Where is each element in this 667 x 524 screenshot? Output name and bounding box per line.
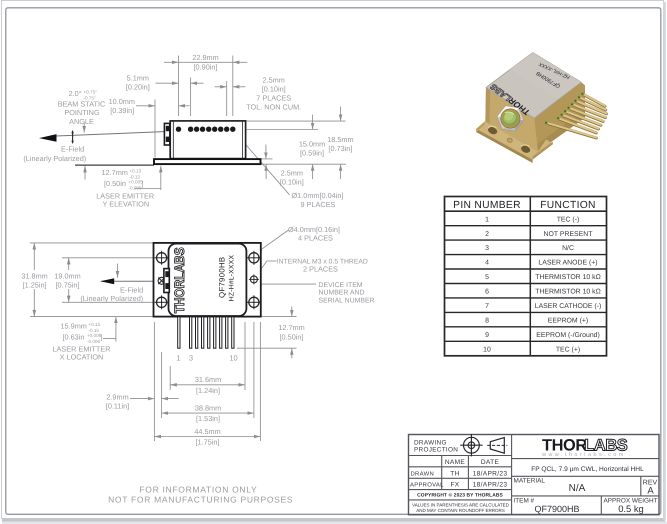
svg-text:PIN NUMBER: PIN NUMBER	[453, 200, 521, 211]
svg-text:(Linearly Polarized): (Linearly Polarized)	[23, 154, 86, 163]
svg-text:[0.75in]: [0.75in]	[56, 280, 80, 289]
svg-text:A: A	[647, 486, 654, 497]
svg-text:QF7900HB: QF7900HB	[218, 257, 227, 298]
svg-text:N/A: N/A	[569, 483, 586, 494]
svg-text:(Linearly Polarized): (Linearly Polarized)	[80, 294, 143, 303]
svg-text:ITEM #: ITEM #	[514, 497, 535, 504]
svg-text:4 PLACES: 4 PLACES	[298, 233, 333, 242]
svg-text:22.9mm: 22.9mm	[192, 53, 218, 62]
svg-text:AND MAY CONTAIN ROUNDOFF ERROR: AND MAY CONTAIN ROUNDOFF ERRORS	[416, 508, 505, 513]
svg-text:Ø1.0mm[0.04in]: Ø1.0mm[0.04in]	[292, 191, 344, 200]
svg-text:DRAWING: DRAWING	[414, 439, 447, 446]
svg-text:2: 2	[485, 231, 489, 238]
svg-text:8: 8	[485, 318, 489, 325]
svg-text:15.0mm: 15.0mm	[299, 140, 325, 149]
svg-text:2 PLACES: 2 PLACES	[303, 264, 338, 273]
svg-text:2.0°: 2.0°	[69, 89, 82, 98]
svg-text:[0.10in]: [0.10in]	[262, 84, 286, 93]
svg-text:+0.006: +0.006	[87, 333, 102, 338]
svg-text:NOT FOR MANUFACTURING PURPOSES: NOT FOR MANUFACTURING PURPOSES	[108, 495, 293, 505]
svg-text:3: 3	[189, 353, 193, 362]
svg-text:+0.15: +0.15	[89, 322, 101, 327]
svg-text:31.8mm: 31.8mm	[21, 271, 47, 280]
svg-text:[1.24in]: [1.24in]	[196, 386, 220, 395]
svg-text:FOR INFORMATION ONLY: FOR INFORMATION ONLY	[139, 484, 257, 494]
svg-text:N/C: N/C	[562, 245, 574, 252]
svg-text:www.thorlabs.com: www.thorlabs.com	[541, 452, 626, 458]
svg-text:THORLABS: THORLABS	[172, 247, 187, 313]
svg-text:12.7mm: 12.7mm	[102, 168, 128, 177]
svg-text:15.9mm: 15.9mm	[61, 321, 87, 330]
svg-text:APPROVAL: APPROVAL	[410, 482, 444, 489]
svg-text:9 PLACES: 9 PLACES	[301, 200, 336, 209]
svg-text:9: 9	[485, 332, 489, 339]
svg-text:THERMISTOR 10 kΩ: THERMISTOR 10 kΩ	[535, 274, 601, 281]
svg-text:DATE: DATE	[481, 459, 500, 466]
svg-text:TEC (+): TEC (+)	[556, 346, 580, 353]
svg-text:]: ]	[142, 179, 144, 188]
svg-text:6: 6	[485, 289, 489, 296]
svg-text:Y ELEVATION: Y ELEVATION	[102, 200, 149, 209]
svg-text:TH: TH	[450, 470, 459, 477]
svg-text:E-Field: E-Field	[61, 145, 84, 154]
svg-text:[1.75in]: [1.75in]	[196, 438, 220, 447]
svg-text:1: 1	[176, 353, 180, 362]
svg-text:POINTING: POINTING	[64, 108, 100, 117]
svg-text:NUMBER AND: NUMBER AND	[319, 290, 365, 297]
svg-text:DEVICE ITEM: DEVICE ITEM	[319, 282, 363, 289]
svg-text:1: 1	[485, 216, 489, 223]
svg-text:12.7mm: 12.7mm	[278, 323, 304, 332]
svg-text:EEPROM (-/Ground): EEPROM (-/Ground)	[536, 332, 600, 339]
svg-text:EEPROM (+): EEPROM (+)	[548, 318, 588, 325]
svg-text:QF7900HB: QF7900HB	[534, 504, 579, 514]
svg-text:7 PLACES: 7 PLACES	[256, 93, 291, 102]
svg-text:LASER ANODE (+): LASER ANODE (+)	[538, 260, 597, 267]
svg-text:[0.39in]: [0.39in]	[110, 106, 134, 115]
svg-text:[0.10in]: [0.10in]	[280, 178, 304, 187]
svg-text:[0.59in]: [0.59in]	[300, 149, 324, 158]
svg-text:HZ-H#L-XXXX: HZ-H#L-XXXX	[229, 255, 236, 302]
svg-text:THERMISTOR 10 kΩ: THERMISTOR 10 kΩ	[535, 289, 601, 296]
svg-text:]: ]	[101, 333, 103, 342]
svg-text:+0.13: +0.13	[130, 168, 142, 173]
svg-text:LASER CATHODE (-): LASER CATHODE (-)	[535, 303, 602, 310]
svg-text:5.1mm: 5.1mm	[127, 73, 149, 82]
svg-text:[0.90in]: [0.90in]	[194, 63, 218, 72]
svg-text:BEAM STATIC: BEAM STATIC	[58, 100, 106, 109]
svg-text:2.5mm: 2.5mm	[263, 75, 285, 84]
svg-text:FP QCL, 7.9 μm CWL, Horizontal: FP QCL, 7.9 μm CWL, Horizontal HHL	[531, 466, 644, 473]
svg-text:[1.25in]: [1.25in]	[23, 280, 47, 289]
svg-text:[0.50in]: [0.50in]	[280, 332, 304, 341]
svg-text:18/APR/23: 18/APR/23	[473, 470, 508, 477]
svg-text:3: 3	[485, 245, 489, 252]
svg-text:TOL. NON CUM.: TOL. NON CUM.	[246, 102, 301, 111]
svg-text:MATERIAL: MATERIAL	[514, 477, 546, 484]
svg-text:4: 4	[485, 260, 489, 267]
svg-text:0.5 kg: 0.5 kg	[618, 503, 644, 514]
svg-text:[0.73in]: [0.73in]	[328, 144, 352, 153]
svg-text:2.9mm: 2.9mm	[106, 392, 128, 401]
svg-text:-0.15: -0.15	[89, 328, 100, 333]
svg-text:10: 10	[229, 353, 237, 362]
svg-text:31.6mm: 31.6mm	[195, 375, 221, 384]
svg-text:PROJECTION: PROJECTION	[414, 446, 458, 453]
svg-text:ANGLE: ANGLE	[69, 117, 94, 126]
svg-text:2.5mm: 2.5mm	[281, 169, 303, 178]
svg-text:44.5mm: 44.5mm	[194, 427, 220, 436]
svg-text:TEC (-): TEC (-)	[557, 216, 580, 223]
svg-text:10: 10	[483, 346, 491, 353]
svg-text:+0.75°: +0.75°	[84, 89, 98, 94]
svg-text:18/APR/23: 18/APR/23	[473, 482, 508, 489]
svg-text:FUNCTION: FUNCTION	[540, 200, 596, 211]
svg-text:-0.005: -0.005	[129, 185, 142, 190]
svg-text:SERIAL NUMBER: SERIAL NUMBER	[319, 297, 375, 304]
svg-text:38.8mm: 38.8mm	[195, 404, 221, 413]
svg-text:VALUES IN PARENTHESIS ARE CALC: VALUES IN PARENTHESIS ARE CALCULATED	[412, 502, 510, 507]
svg-text:5: 5	[485, 274, 489, 281]
svg-text:7: 7	[485, 303, 489, 310]
svg-text:NAME: NAME	[445, 459, 466, 466]
svg-text:FX: FX	[450, 482, 459, 489]
svg-text:[1.53in]: [1.53in]	[196, 414, 220, 423]
svg-text:[0.63in: [0.63in	[63, 333, 85, 342]
svg-text:19.0mm: 19.0mm	[54, 271, 80, 280]
svg-text:[0.11in]: [0.11in]	[106, 402, 129, 411]
svg-text:10.0mm: 10.0mm	[109, 97, 135, 106]
svg-text:[0.50in: [0.50in	[104, 179, 126, 188]
svg-text:NOT PRESENT: NOT PRESENT	[544, 231, 594, 238]
svg-text:DRAWN: DRAWN	[411, 470, 435, 477]
svg-text:X LOCATION: X LOCATION	[60, 353, 104, 362]
svg-text:18.5mm: 18.5mm	[327, 135, 353, 144]
svg-text:[0.20in]: [0.20in]	[126, 82, 150, 91]
svg-text:COPYRIGHT © 2023 BY THORLABS: COPYRIGHT © 2023 BY THORLABS	[417, 493, 503, 499]
